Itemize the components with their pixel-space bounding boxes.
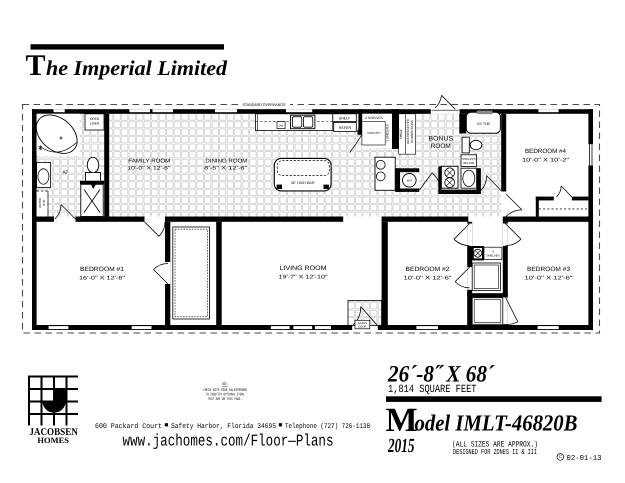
svg-text:THAT ARE ON THIS PAGE.: THAT ARE ON THIS PAGE. — [208, 397, 242, 402]
svg-text:SHELF: SHELF — [399, 129, 403, 140]
svg-text:BEDROOM #3: BEDROOM #3 — [527, 266, 571, 273]
svg-text:(ALL SIZES ARE APPROX.): (ALL SIZES ARE APPROX.) — [452, 440, 538, 449]
svg-text:REFER: REFER — [339, 126, 352, 130]
svg-text:C: C — [559, 454, 562, 459]
svg-text:Safety Harbor, Florida 34695: Safety Harbor, Florida 34695 — [171, 422, 276, 431]
svg-text:LIVING ROOM: LIVING ROOM — [280, 265, 327, 272]
svg-text:SHELF: SHELF — [339, 117, 351, 121]
svg-text:BEDROOM #1: BEDROOM #1 — [80, 266, 125, 273]
svg-text:DW: DW — [279, 123, 284, 127]
svg-text:STANDARD OVERHANGS: STANDARD OVERHANGS — [243, 102, 286, 107]
svg-text:CONNECTIONS: CONNECTIONS — [410, 120, 414, 143]
svg-text:Telephone (727) 726-1138: Telephone (727) 726-1138 — [285, 422, 370, 431]
svg-text:BONUS: BONUS — [429, 136, 454, 143]
svg-text:10'-0" X 10'-2": 10'-0" X 10'-2" — [522, 157, 569, 163]
svg-text:8'-5" X 12'-6": 8'-5" X 12'-6" — [204, 166, 247, 172]
svg-text:BEDROOM #4: BEDROOM #4 — [525, 148, 567, 155]
svg-text:19'-7" X 12'-10": 19'-7" X 12'-10" — [279, 275, 328, 281]
svg-text:10'-0" X 12'-6": 10'-0" X 12'-6" — [404, 276, 452, 282]
svg-text:B.A. GRL: B.A. GRL — [446, 191, 460, 195]
svg-text:1,814 SQUARE FEET: 1,814 SQUARE FEET — [388, 384, 477, 396]
svg-text:FAMILY ROOM: FAMILY ROOM — [128, 158, 170, 164]
svg-text:BEDROOM #2: BEDROOM #2 — [406, 266, 451, 273]
svg-text:GLASS: GLASS — [358, 322, 367, 325]
svg-text:02-01-13: 02-01-13 — [567, 455, 602, 463]
svg-text:SHELVES: SHELVES — [486, 254, 499, 258]
svg-text:ROOM: ROOM — [431, 143, 451, 150]
svg-text:HTR: HTR — [42, 200, 46, 206]
svg-text:CHECK WITH YOUR SALESPERSON: CHECK WITH YOUR SALESPERSON — [203, 388, 247, 393]
svg-text:www.jachomes.com/Floor—Plans: www.jachomes.com/Floor—Plans — [123, 432, 334, 451]
svg-text:DINING ROOM: DINING ROOM — [205, 158, 247, 164]
svg-text:he Imperial Limited: he Imperial Limited — [46, 56, 228, 80]
svg-text:BELOW: BELOW — [463, 161, 474, 165]
svg-text:T: T — [26, 49, 46, 82]
svg-text:TO IDENTIFY OPTIONAL ITEMS: TO IDENTIFY OPTIONAL ITEMS — [206, 393, 245, 398]
svg-text:10'-0" X 12'-6": 10'-0" X 12'-6" — [127, 166, 170, 172]
svg-text:600 Packard Court: 600 Packard Court — [95, 422, 162, 431]
svg-text:PANTRY: PANTRY — [368, 131, 381, 135]
svg-text:DOOR: DOOR — [358, 326, 366, 329]
svg-text:NOTE:: NOTE: — [222, 382, 228, 387]
svg-text:HOMES: HOMES — [37, 436, 69, 445]
svg-text:odel IMLT-46820B: odel IMLT-46820B — [415, 410, 578, 435]
svg-text:2 SHELVES: 2 SHELVES — [365, 116, 384, 120]
svg-text:16'-0" X 12'-6": 16'-0" X 12'-6" — [79, 276, 125, 282]
svg-text:WH: WH — [407, 179, 412, 183]
svg-text:54" TUB: 54" TUB — [477, 122, 490, 126]
svg-text:LINEN: LINEN — [90, 122, 100, 126]
svg-text:2015: 2015 — [387, 435, 414, 457]
svg-text:OPEN: OPEN — [90, 117, 100, 121]
svg-text:DESIGNED FOR ZONES II & III: DESIGNED FOR ZONES II & III — [453, 448, 537, 457]
svg-text:10'-0" X 12'-6": 10'-0" X 12'-6" — [525, 276, 573, 282]
svg-text:36" HIGH BAR: 36" HIGH BAR — [291, 181, 315, 185]
svg-text:#2: #2 — [62, 170, 68, 175]
svg-text:3 SHELVES: 3 SHELVES — [386, 123, 390, 142]
svg-text:M: M — [386, 402, 418, 439]
